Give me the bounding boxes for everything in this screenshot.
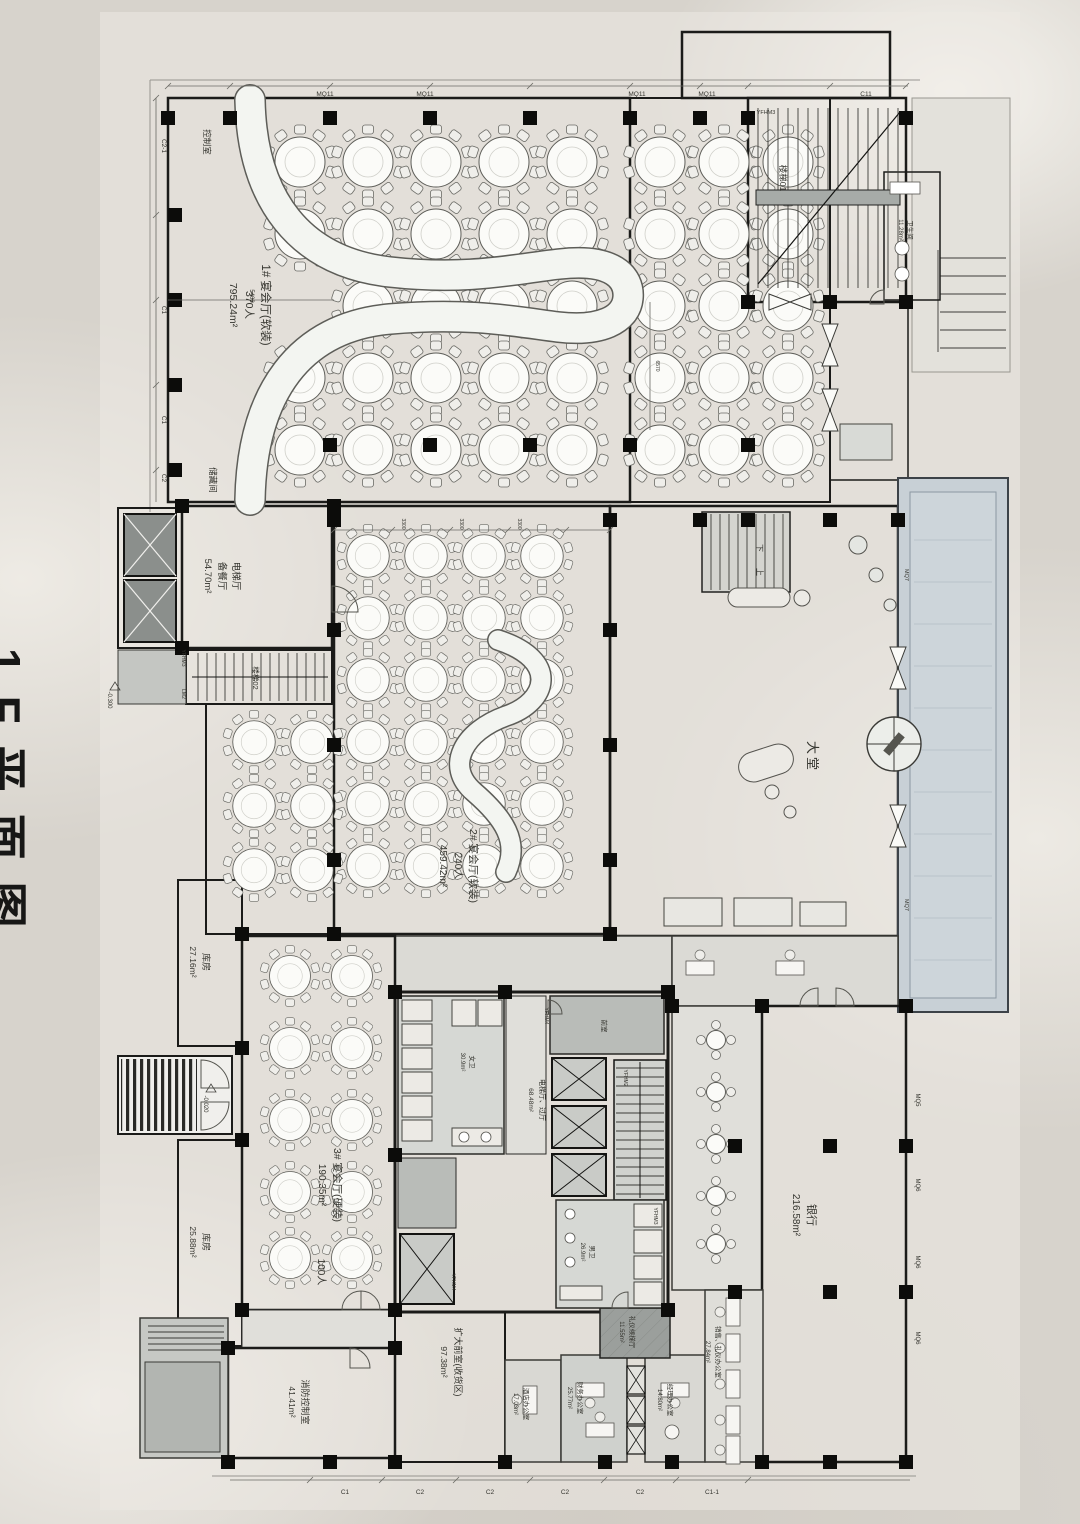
label-sales-office: 销售、礼仪办公室 [714,1326,723,1379]
core-stair [614,1060,666,1200]
dim-3300-3: 3300 [516,518,522,529]
label-banquet2-cap: 240人 [452,853,464,880]
corridor-mid [395,936,672,992]
left-elevators [124,514,176,642]
label-store1-name: 库房 [201,953,212,971]
label-manager-office: 经理办公室 [666,1384,675,1417]
label-vestibule-area: 97.38m² [439,1346,449,1377]
label-control-room: 控制室 [202,129,212,155]
label-front-room: 前室 [600,1020,609,1034]
label-store2-name: 库房 [201,1233,212,1251]
label-storage: 储藏间 [208,467,218,493]
stair-01 [756,108,900,288]
office-shaft-strip [627,1366,645,1454]
label-banquet2-name: 2# 宴会厅(软装) [467,829,480,903]
label-fire-name: 消防控制室 [300,1379,311,1424]
vestibule-loading [395,1312,505,1462]
label-liftwait: 礼仪候梯厅 [628,1316,637,1349]
revolving-door [867,717,921,771]
label-banquet2-area: 459.42m² [437,845,448,888]
marker-c1-a: C1 [160,306,167,315]
label-pantry-area: 54.70m² [202,559,213,594]
marker-yfhm4-core: YFHM4 [543,1008,549,1025]
floor-plan: 1# 宴会厅(软装) 370人 795.24m² 2# 宴会厅(软装) 240人… [0,0,1080,1524]
label-pantry-1: 电梯厅 [230,562,242,591]
label-womens-area: 30.9m² [459,1053,465,1072]
marker-mq6-3: MQ6 [914,1331,920,1345]
label-elevhall-name: 电梯厅、过厅 [538,1079,547,1121]
label-finance-office: 财务办公室 [576,1382,585,1415]
marker-yfhm3-stair02: YFHM3 [180,650,186,667]
dim-3300-2: 3300 [458,518,464,529]
dim-3300-1: 3300 [400,518,406,529]
marker-yfhm2-core: YFHM2 [622,1070,628,1087]
marker-yfhm3-top: YFHM3 [757,110,776,116]
label-bank-name: 银行 [805,1204,819,1226]
marker-c1-b: C1 [160,416,167,425]
label-banquet3-area: 190.35m² [316,1164,327,1207]
label-fire-area: 41.41m² [287,1386,297,1417]
marker-mq7-2: MQ7 [903,899,909,911]
marker-mq11-1: MQ11 [316,91,334,98]
core-vestibule [506,996,546,1154]
label-mens-area: 26.9m² [579,1243,585,1262]
marker-mq5: MQ5 [914,1093,920,1107]
marker-mq11-4: MQ11 [698,91,716,98]
marker-c2-b2: C2 [486,1489,495,1496]
elevation-minus-0020: -0.020 [202,1095,208,1113]
label-store2-area: 25.88m² [188,1226,198,1257]
marker-mq11-3: MQ11 [628,91,646,98]
label-sales-area: 27.84m² [704,1341,710,1363]
label-wc-topright: 卫生间 [906,220,915,240]
manager-office [645,1355,705,1462]
service-room [398,1158,456,1228]
label-lobby: 大堂 [805,741,820,773]
dim-5400: 5400 [248,289,254,303]
corridor-hall3 [242,1310,395,1348]
label-finance-area: 25.77m² [566,1387,572,1409]
banquet1-tables [263,125,825,487]
roof-canopy [682,32,890,98]
marker-yfhm4-shaft: YFHM4 [450,1274,456,1291]
label-banquet3-cap: 100人 [315,1259,327,1286]
marker-c11: C11 [860,91,872,98]
marker-c1-1: C1-1 [705,1489,719,1496]
label-stair01: 楼梯01 [778,165,788,192]
label-wc-topright-area: 11.28m² [897,219,903,241]
elevator [552,1154,606,1196]
marker-c2-b3: C2 [561,1489,570,1496]
label-womens-name: 女卫 [468,1056,477,1070]
label-banquet1-area: 795.24m² [227,283,239,328]
label-vestibule-name: 扩大前室(收货区) [453,1328,464,1397]
water-feature-inner [910,492,996,998]
marker-mq7-1: MQ7 [903,569,909,581]
label-banquet3-name: 3# 宴会厅(硬装) [331,1148,344,1222]
label-stair-up: 上 [755,568,764,576]
label-hotel-area: 17.03m² [512,1393,518,1415]
label-manager-area: 14.80m² [656,1389,662,1411]
small-room-left [118,650,186,704]
label-banquet1-name: 1# 宴会厅(软装) [259,264,273,345]
marker-lm2: LM2 [180,689,186,699]
marker-mq6-1: MQ6 [914,1178,920,1192]
label-mens-name: 男卫 [588,1246,596,1260]
marker-c2-b1: C2 [416,1489,425,1496]
elevator [552,1106,606,1148]
label-pantry-2: 备餐厅 [216,562,228,591]
elevation-minus-0300: -0.300 [106,691,112,709]
label-liftwait-area: 11.55m² [618,1321,624,1343]
label-store1-area: 27.16m² [188,946,198,977]
label-stair-down: 下 [755,544,764,552]
banquet3-tables [260,946,382,1289]
entry-stair-left [118,1056,232,1134]
label-stair02: 楼梯02 [251,666,261,689]
dim-6570: 6570 [654,360,660,371]
marker-c2-b4: C2 [636,1489,645,1496]
bank [762,1006,906,1462]
marker-c2-1: C2-1 [160,139,167,153]
label-hotel-office: 酒店办公室 [522,1388,531,1421]
marker-mq11-2: MQ11 [416,91,434,98]
elevator [552,1058,606,1100]
marker-c1-bottom: C1 [341,1489,350,1496]
label-bank-area: 216.58m² [790,1194,801,1237]
marker-c2-a: C2 [160,474,167,483]
core-interior [398,996,666,1308]
label-elevhall-area: 68.48m² [527,1088,534,1113]
marker-mq6-2: MQ6 [914,1255,920,1269]
marker-yfhm3-core: YFHM3 [652,1208,658,1225]
